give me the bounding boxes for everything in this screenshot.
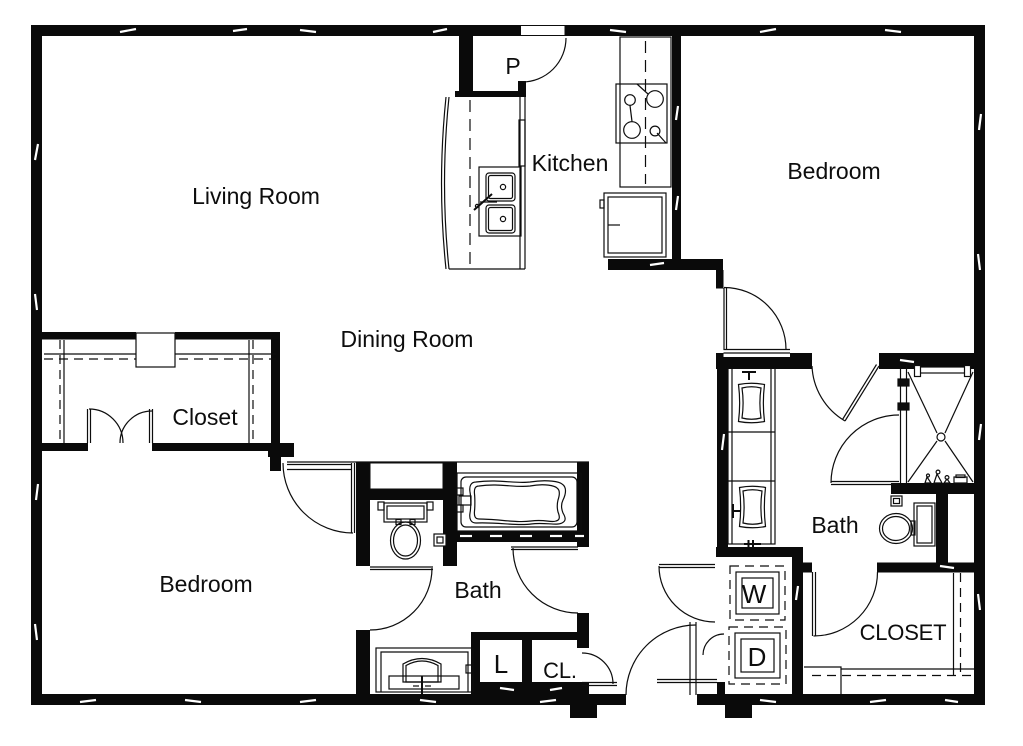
svg-text:L: L [494, 649, 508, 679]
svg-text:W: W [742, 579, 767, 609]
svg-text:Kitchen: Kitchen [532, 150, 609, 176]
svg-text:Dining Room: Dining Room [341, 326, 474, 352]
svg-text:D: D [748, 642, 767, 672]
svg-text:Bath: Bath [454, 577, 501, 603]
svg-text:CL.: CL. [543, 658, 577, 683]
svg-text:Closet: Closet [172, 404, 238, 430]
svg-text:Bedroom: Bedroom [159, 571, 252, 597]
svg-text:Bath: Bath [811, 512, 858, 538]
svg-text:CLOSET: CLOSET [860, 620, 947, 645]
svg-text:Bedroom: Bedroom [787, 158, 880, 184]
svg-text:P: P [505, 53, 520, 79]
svg-text:Living Room: Living Room [192, 183, 320, 209]
